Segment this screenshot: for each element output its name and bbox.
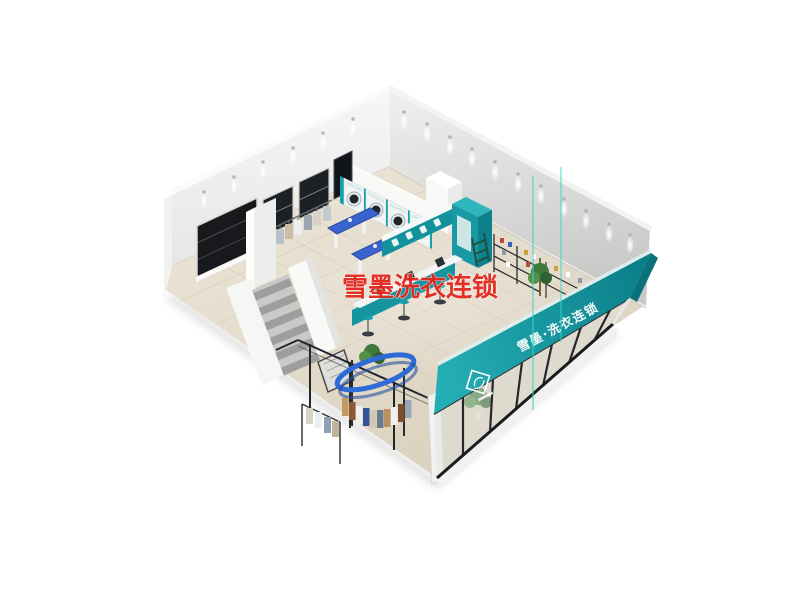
render-image: 雪墨·洗衣连锁 雪墨洗衣连锁 <box>0 0 800 600</box>
watermark-text: 雪墨洗衣连锁 <box>342 272 498 303</box>
interior-partition-wall <box>246 198 276 292</box>
laundry-store-render: 雪墨·洗衣连锁 雪墨洗衣连锁 <box>0 0 800 600</box>
